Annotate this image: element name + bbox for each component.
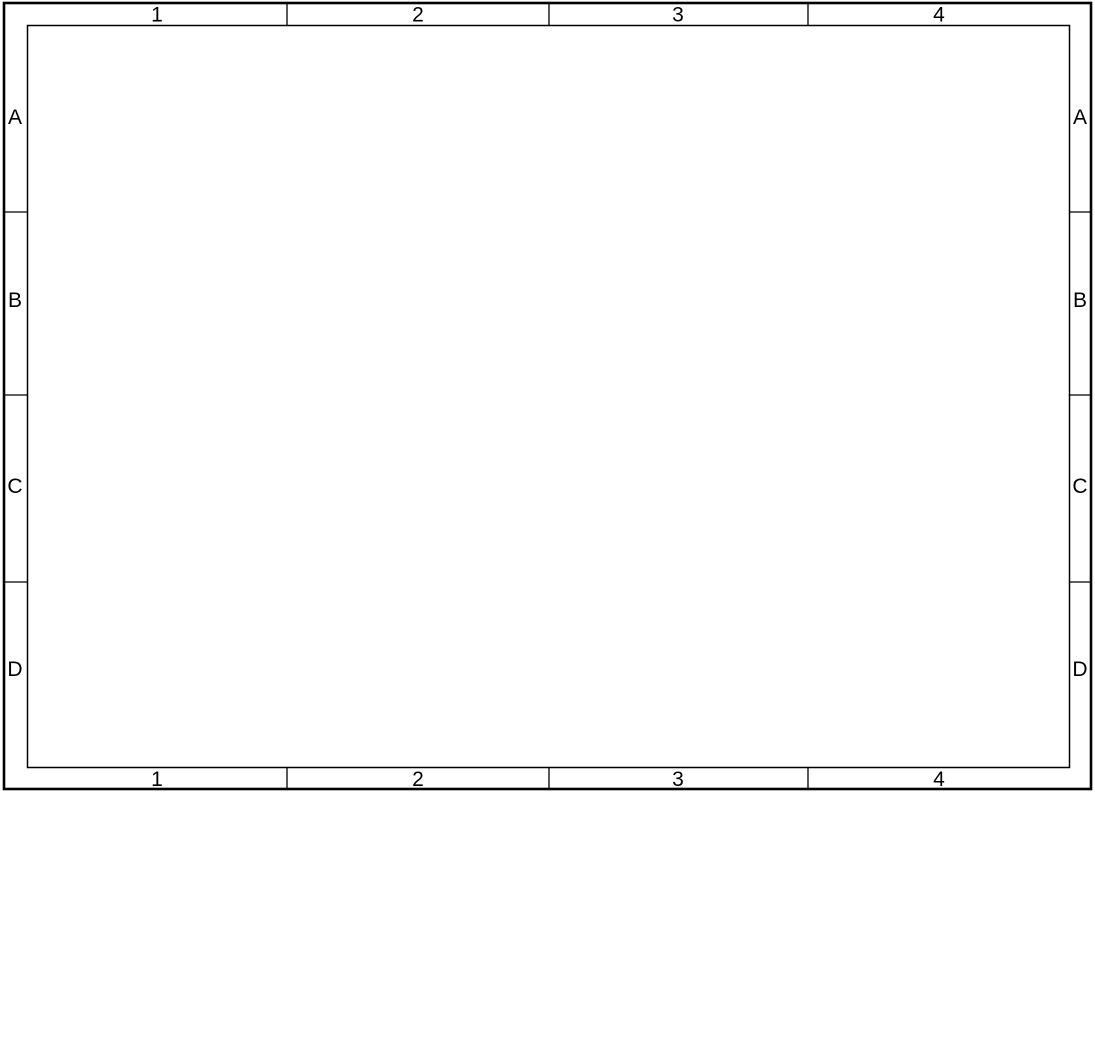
- svg-text:3: 3: [672, 768, 684, 791]
- svg-text:1: 1: [151, 768, 163, 791]
- svg-text:1: 1: [151, 4, 163, 27]
- svg-text:D: D: [7, 658, 22, 681]
- svg-text:D: D: [1072, 658, 1087, 681]
- svg-text:A: A: [1073, 106, 1087, 129]
- svg-text:4: 4: [933, 768, 945, 791]
- svg-text:C: C: [1072, 475, 1087, 498]
- svg-text:B: B: [8, 289, 22, 312]
- svg-text:B: B: [1073, 289, 1087, 312]
- svg-text:3: 3: [672, 4, 684, 27]
- svg-text:2: 2: [412, 768, 424, 791]
- svg-text:C: C: [7, 475, 22, 498]
- svg-text:4: 4: [933, 4, 945, 27]
- svg-text:2: 2: [412, 4, 424, 27]
- svg-text:A: A: [8, 106, 22, 129]
